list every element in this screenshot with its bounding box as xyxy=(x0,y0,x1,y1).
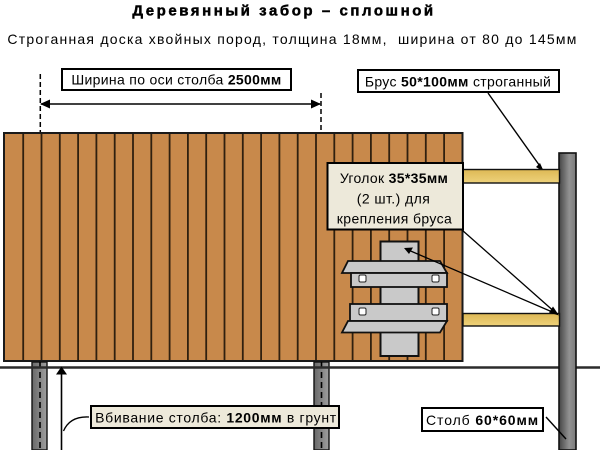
svg-text:(2 шт.) для: (2 шт.) для xyxy=(357,191,430,207)
svg-text:Строганная доска хвойных пород: Строганная доска хвойных пород, толщина … xyxy=(7,31,577,47)
svg-text:Деревянный забор – сплошной: Деревянный забор – сплошной xyxy=(132,3,435,20)
svg-text:Уголок 35*35мм: Уголок 35*35мм xyxy=(340,170,448,186)
svg-text:Столб 60*60мм: Столб 60*60мм xyxy=(426,412,539,428)
svg-text:Вбивание столба: 1200мм в грун: Вбивание столба: 1200мм в грунт xyxy=(95,410,337,426)
svg-text:Брус 50*100мм строганный: Брус 50*100мм строганный xyxy=(365,74,551,90)
svg-text:Ширина по оси столба 2500мм: Ширина по оси столба 2500мм xyxy=(71,72,281,88)
svg-text:крепления бруса: крепления бруса xyxy=(337,211,452,227)
